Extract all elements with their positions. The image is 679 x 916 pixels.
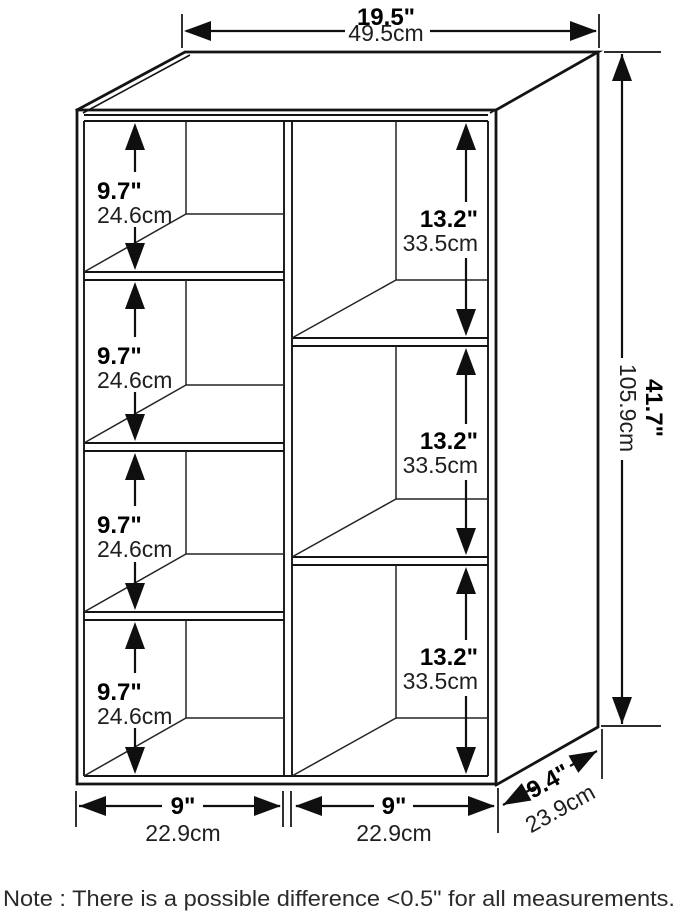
arrowhead-down — [125, 243, 145, 270]
cell-inches-label: 9.7" — [97, 512, 142, 539]
cell-inches-label: 9.7" — [97, 178, 142, 205]
left-cell-dimension-3: 9.7" 24.6cm — [97, 453, 172, 610]
arrowhead-up — [456, 123, 476, 150]
cell-inches-label: 13.2" — [420, 644, 478, 671]
height-cm-label: 105.9cm — [615, 364, 641, 452]
cell-inches-label: 9.7" — [97, 343, 142, 370]
cabinet-structure — [77, 52, 598, 785]
height-dimension: 41.7" 105.9cm — [601, 52, 667, 726]
left-cell-dimension-4: 9.7" 24.6cm — [97, 622, 172, 774]
cell-cm-label: 33.5cm — [403, 230, 478, 256]
arrowhead-right — [570, 21, 597, 41]
arrowhead-up — [456, 348, 476, 375]
measurement-note: Note : There is a possible difference <0… — [3, 886, 675, 911]
left-cell-dimension-2: 9.7" 24.6cm — [97, 282, 172, 441]
height-inches-label: 41.7" — [640, 379, 667, 437]
arrowhead-up — [125, 622, 145, 649]
span-cm-label: 22.9cm — [356, 820, 431, 846]
arrowhead-down — [125, 583, 145, 610]
bottom-width-dimension-right: 9" 22.9cm — [295, 788, 498, 846]
left-shelves — [84, 272, 284, 620]
arrowhead-down — [125, 747, 145, 774]
cell-inches-label: 13.2" — [420, 428, 478, 455]
arrowhead-upper-right — [569, 751, 598, 773]
cell-cm-label: 24.6cm — [97, 703, 172, 729]
arrowhead-up — [612, 54, 632, 81]
cell-cm-label: 33.5cm — [403, 668, 478, 694]
dimension-diagram-canvas: 19.5" 49.5cm 41.7" 105.9cm 9.7" 24.6cm 9… — [0, 0, 679, 916]
span-cm-label: 22.9cm — [145, 820, 220, 846]
span-inches-label: 9" — [171, 793, 196, 820]
arrowhead-left — [295, 796, 322, 816]
left-cell-dimension-1: 9.7" 24.6cm — [97, 123, 172, 270]
arrowhead-up — [125, 282, 145, 309]
arrowhead-up — [125, 453, 145, 480]
center-divider — [284, 121, 292, 776]
cell-cm-label: 33.5cm — [403, 452, 478, 478]
right-cell-dimension-2: 13.2" 33.5cm — [403, 348, 478, 555]
arrowhead-down — [125, 414, 145, 441]
depth-dimension: 9.4" 23.9cm — [503, 729, 602, 838]
cell-cm-label: 24.6cm — [97, 202, 172, 228]
cell-inches-label: 9.7" — [97, 679, 142, 706]
bottom-width-dimension-left: 9" 22.9cm — [76, 791, 291, 846]
right-cell-dimension-3: 13.2" 33.5cm — [403, 567, 478, 774]
right-cell-dimension-1: 13.2" 33.5cm — [403, 123, 478, 336]
top-width-dimension: 19.5" 49.5cm — [182, 4, 599, 48]
arrowhead-left — [79, 796, 106, 816]
arrowhead-up — [456, 567, 476, 594]
arrowhead-right — [254, 796, 281, 816]
arrowhead-down — [612, 697, 632, 724]
top-surface-outline — [77, 52, 598, 110]
top-surface-inner-edges — [83, 55, 591, 113]
width-cm-label: 49.5cm — [348, 20, 423, 46]
arrowhead-right — [468, 796, 495, 816]
arrowhead-down — [456, 747, 476, 774]
arrowhead-down — [456, 309, 476, 336]
arrowhead-left — [184, 21, 211, 41]
cell-cm-label: 24.6cm — [97, 536, 172, 562]
span-inches-label: 9" — [382, 793, 407, 820]
arrowhead-down — [456, 528, 476, 555]
arrowhead-up — [125, 123, 145, 150]
cell-cm-label: 24.6cm — [97, 367, 172, 393]
bookshelf-dimension-diagram: 19.5" 49.5cm 41.7" 105.9cm 9.7" 24.6cm 9… — [0, 0, 679, 916]
cell-inches-label: 13.2" — [420, 206, 478, 233]
side-panel-outline — [496, 52, 598, 785]
